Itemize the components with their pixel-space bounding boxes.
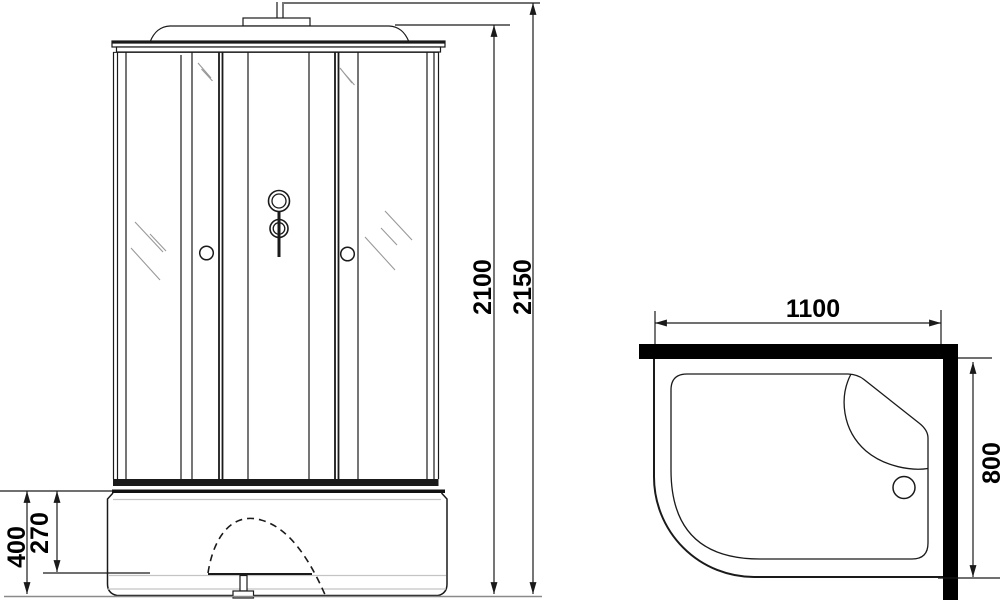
roof-pipe bbox=[243, 2, 310, 26]
front-dimensions bbox=[0, 3, 540, 594]
dome-roof bbox=[150, 26, 409, 42]
siphon-dashed-outline bbox=[208, 518, 326, 597]
drain-fitting bbox=[233, 576, 254, 599]
door-knob-right bbox=[341, 247, 355, 261]
door-knob-left bbox=[200, 246, 214, 260]
dim-label-depth: 800 bbox=[978, 442, 1000, 484]
front-view bbox=[4, 2, 542, 598]
wall-right bbox=[943, 344, 958, 600]
glass-hatch-lines bbox=[131, 63, 412, 280]
top-view bbox=[639, 344, 958, 600]
tray-front bbox=[108, 490, 448, 599]
shower-cabin-drawing: 2100 2150 400 270 1100 800 bbox=[0, 0, 1000, 601]
corner-seat bbox=[844, 374, 928, 469]
tray-inner-rim bbox=[671, 374, 928, 559]
drain-circle bbox=[893, 477, 915, 499]
wall-top bbox=[639, 344, 958, 359]
door-handle bbox=[269, 191, 290, 258]
dim-label-tray-step: 270 bbox=[26, 512, 54, 554]
dim-label-overall-height: 2150 bbox=[509, 259, 537, 315]
tray-outline bbox=[654, 359, 943, 577]
dim-label-cabin-height: 2100 bbox=[469, 259, 497, 315]
drawing-canvas: 2100 2150 400 270 1100 800 bbox=[0, 0, 1000, 601]
cornice bbox=[112, 41, 446, 52]
bottom-rail bbox=[113, 479, 439, 486]
dim-label-width: 1100 bbox=[786, 295, 840, 323]
extension-lines bbox=[0, 3, 540, 573]
glass-wall-frame bbox=[113, 52, 439, 479]
